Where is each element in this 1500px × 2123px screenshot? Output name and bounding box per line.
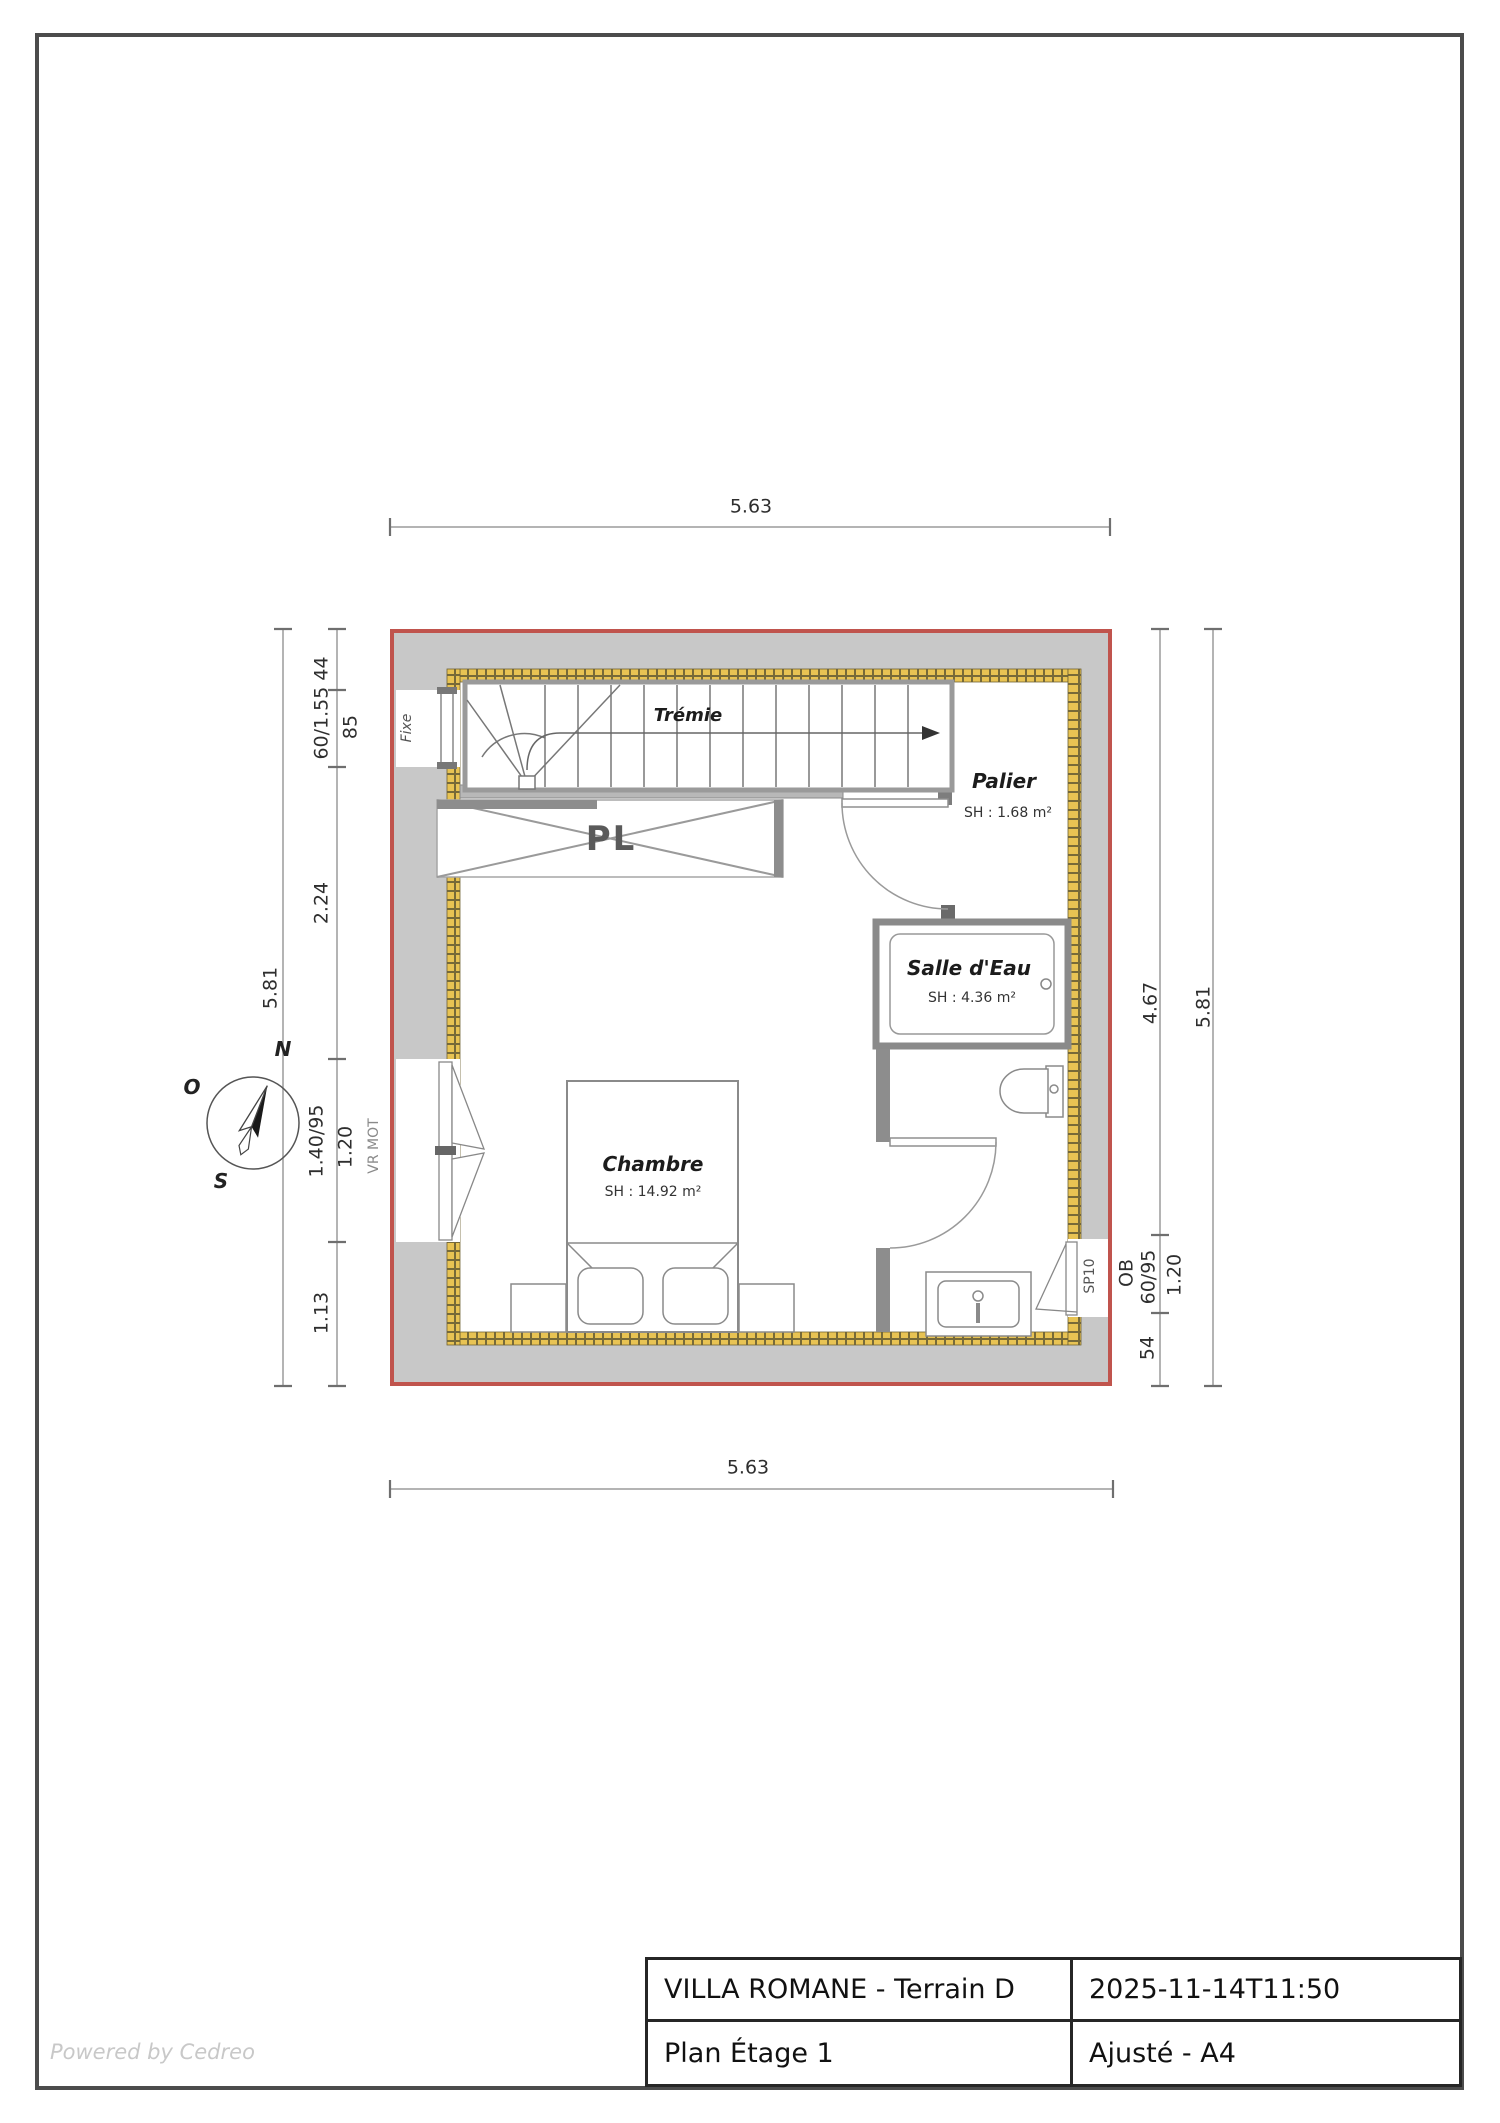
room-area-salle-eau: SH : 4.36 m² bbox=[928, 991, 1016, 1005]
dim-right-window: 60/95 bbox=[1140, 1250, 1159, 1305]
sp10-window-label: SP10 bbox=[1083, 1258, 1097, 1293]
fixe-window-label: Fixe bbox=[400, 714, 414, 743]
vr-mot-label: VR MOT bbox=[367, 1118, 381, 1173]
plan-name: Plan Étage 1 bbox=[648, 2022, 1073, 2084]
dim-bottom: 5.63 bbox=[727, 1459, 769, 1478]
dim-left-window-sill: 1.20 bbox=[337, 1126, 356, 1168]
room-label-salle-eau: Salle d'Eau bbox=[907, 958, 1031, 978]
shower-drain-icon bbox=[1041, 979, 1051, 989]
dim-left-bottom: 1.13 bbox=[313, 1292, 332, 1334]
dim-left-window: 1.40/95 bbox=[308, 1105, 327, 1178]
dim-right-total: 5.81 bbox=[1195, 986, 1214, 1028]
title-block: VILLA ROMANE - Terrain D 2025-11-14T11:5… bbox=[645, 1957, 1462, 2087]
dim-right-sill: 1.20 bbox=[1166, 1254, 1185, 1296]
plan-format: Ajusté - A4 bbox=[1073, 2022, 1459, 2084]
bed-icon bbox=[567, 1081, 738, 1332]
dim-left-mid: 2.24 bbox=[313, 882, 332, 924]
sink-icon bbox=[926, 1272, 1031, 1336]
dim-right-bottom: 54 bbox=[1139, 1336, 1158, 1360]
dim-top: 5.63 bbox=[730, 498, 772, 517]
pillow-icon bbox=[578, 1268, 643, 1324]
plan-timestamp: 2025-11-14T11:50 bbox=[1073, 1960, 1459, 2022]
nightstand-icon bbox=[511, 1284, 566, 1332]
staircase bbox=[465, 682, 952, 790]
pillow-icon bbox=[663, 1268, 728, 1324]
dim-left-top-sill: 85 bbox=[342, 715, 361, 739]
compass-icon bbox=[194, 1064, 313, 1183]
room-label-chambre: Chambre bbox=[603, 1154, 704, 1174]
toilet-icon bbox=[1000, 1066, 1063, 1117]
compass-south-label: S bbox=[214, 1171, 228, 1191]
shower-tray bbox=[876, 922, 1068, 1046]
room-label-pl: PL bbox=[586, 822, 637, 856]
dim-left-total: 5.81 bbox=[262, 967, 281, 1009]
plan-page: 5.63 5.63 5.81 60/1.55 44 85 2.24 1.40/9… bbox=[0, 0, 1500, 2123]
project-title: VILLA ROMANE - Terrain D bbox=[648, 1960, 1073, 2022]
room-label-palier: Palier bbox=[972, 771, 1036, 791]
dim-right-height: 4.67 bbox=[1142, 982, 1161, 1024]
room-area-palier: SH : 1.68 m² bbox=[964, 806, 1052, 820]
floor-plan-drawing bbox=[0, 0, 1500, 2123]
dim-right-ob: OB bbox=[1118, 1259, 1137, 1287]
cedreo-watermark: Powered by Cedreo bbox=[50, 2040, 255, 2064]
dim-left-top-window: 60/1.55 44 bbox=[313, 656, 332, 759]
compass-west-label: O bbox=[183, 1077, 200, 1097]
compass-north-label: N bbox=[275, 1039, 292, 1059]
room-label-tremie: Trémie bbox=[654, 707, 723, 725]
room-area-chambre: SH : 14.92 m² bbox=[605, 1185, 702, 1199]
nightstand-icon bbox=[739, 1284, 794, 1332]
